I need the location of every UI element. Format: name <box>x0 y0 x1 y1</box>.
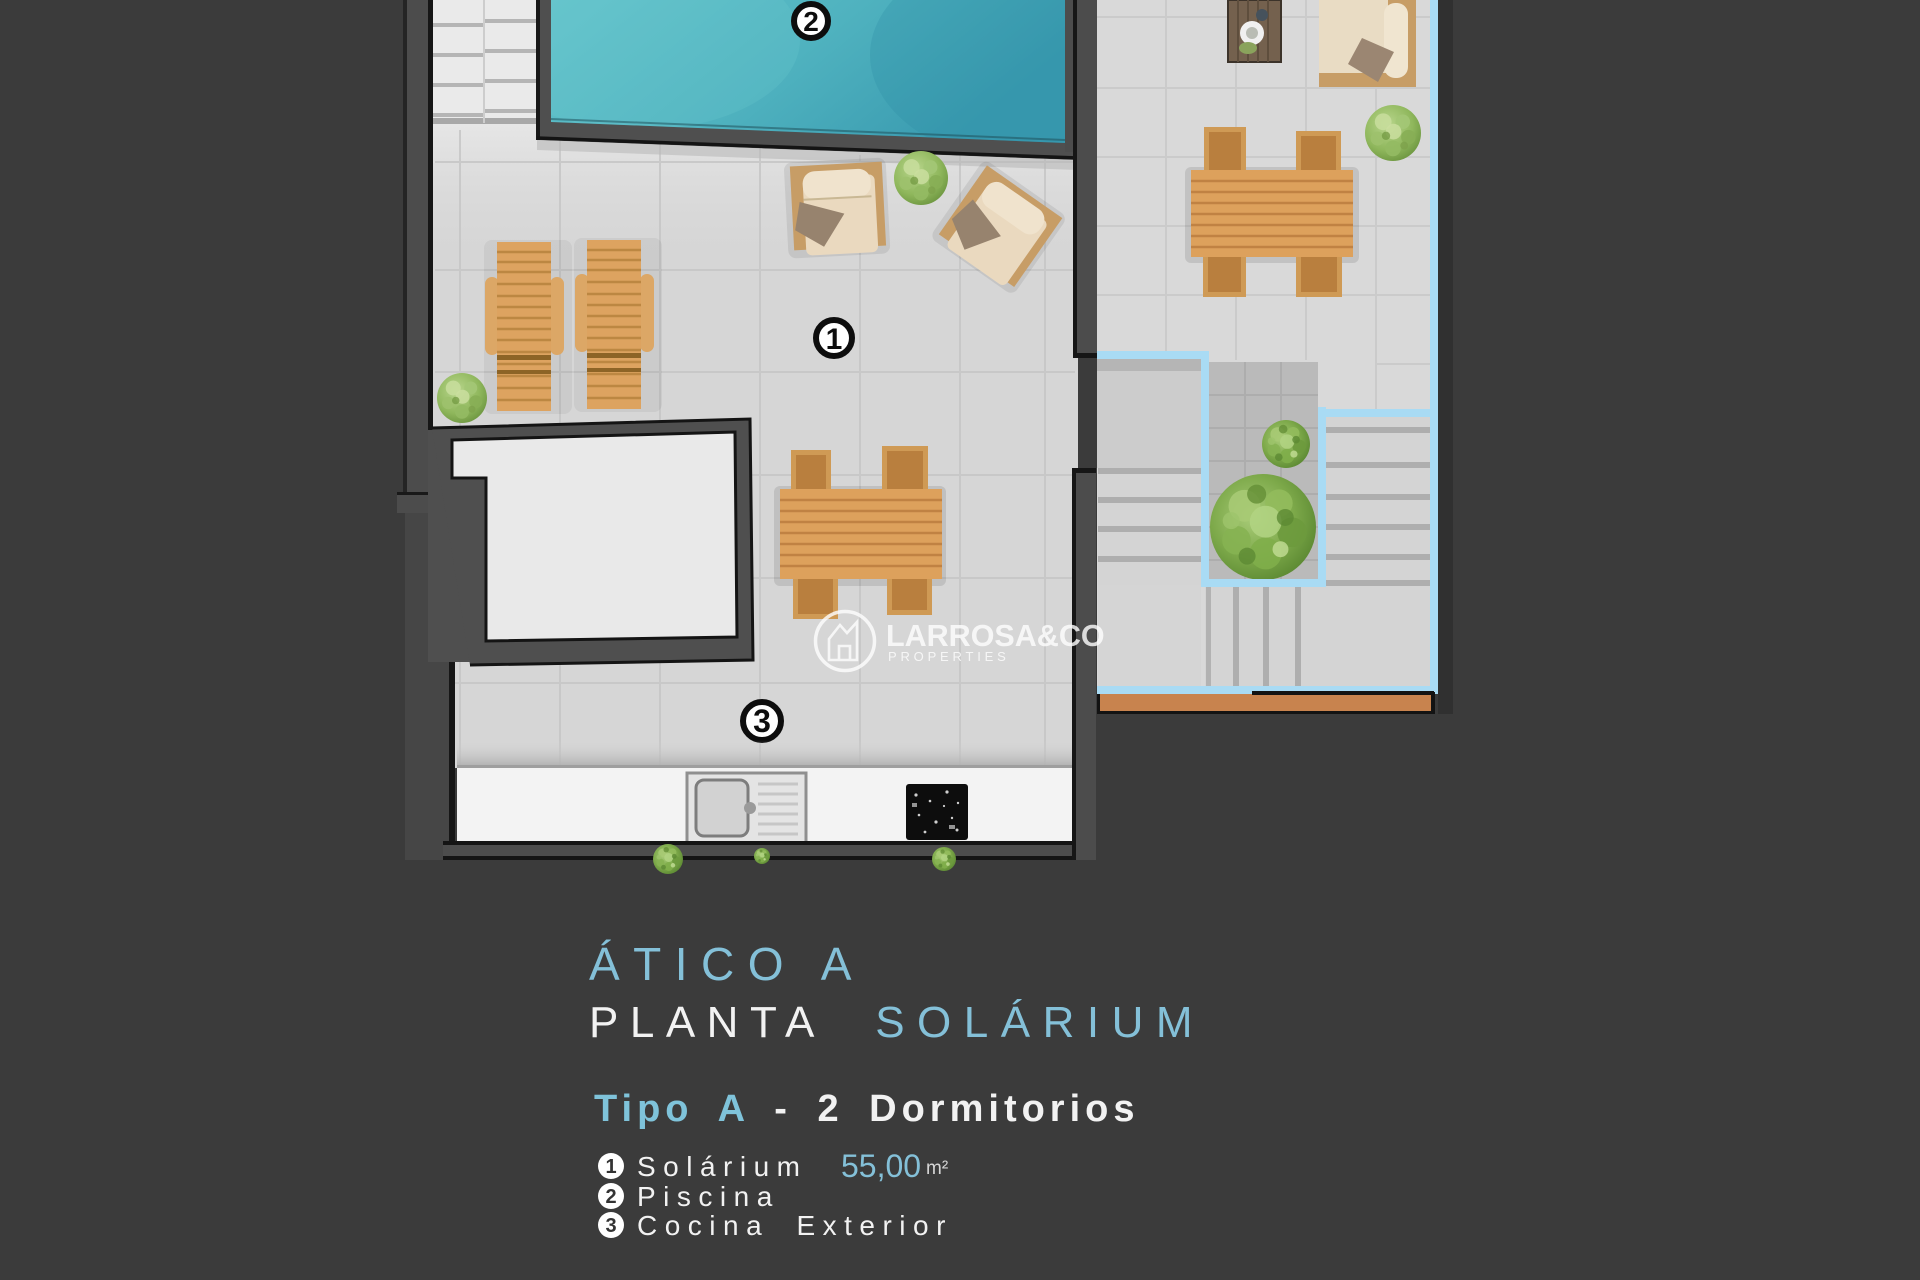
svg-text:PLANTA SOLÁRIUM: PLANTA SOLÁRIUM <box>589 998 1205 1047</box>
svg-text:PROPERTIES: PROPERTIES <box>888 649 1010 664</box>
svg-text:3: 3 <box>753 703 771 739</box>
svg-text:1: 1 <box>826 323 843 356</box>
svg-text:Solárium: Solárium <box>637 1151 807 1182</box>
svg-text:2: 2 <box>803 6 819 37</box>
svg-text:Tipo A - 2 Dormitorios: Tipo A - 2 Dormitorios <box>594 1088 1140 1130</box>
svg-text:3: 3 <box>605 1215 616 1237</box>
svg-text:1: 1 <box>605 1156 616 1178</box>
svg-text:2: 2 <box>605 1186 616 1208</box>
svg-text:55,00: 55,00 <box>841 1148 921 1184</box>
svg-text:LARROSA&CO: LARROSA&CO <box>886 619 1105 653</box>
svg-text:ÁTICO A: ÁTICO A <box>589 938 865 990</box>
svg-text:m²: m² <box>926 1158 948 1179</box>
svg-text:Piscina: Piscina <box>637 1181 780 1212</box>
